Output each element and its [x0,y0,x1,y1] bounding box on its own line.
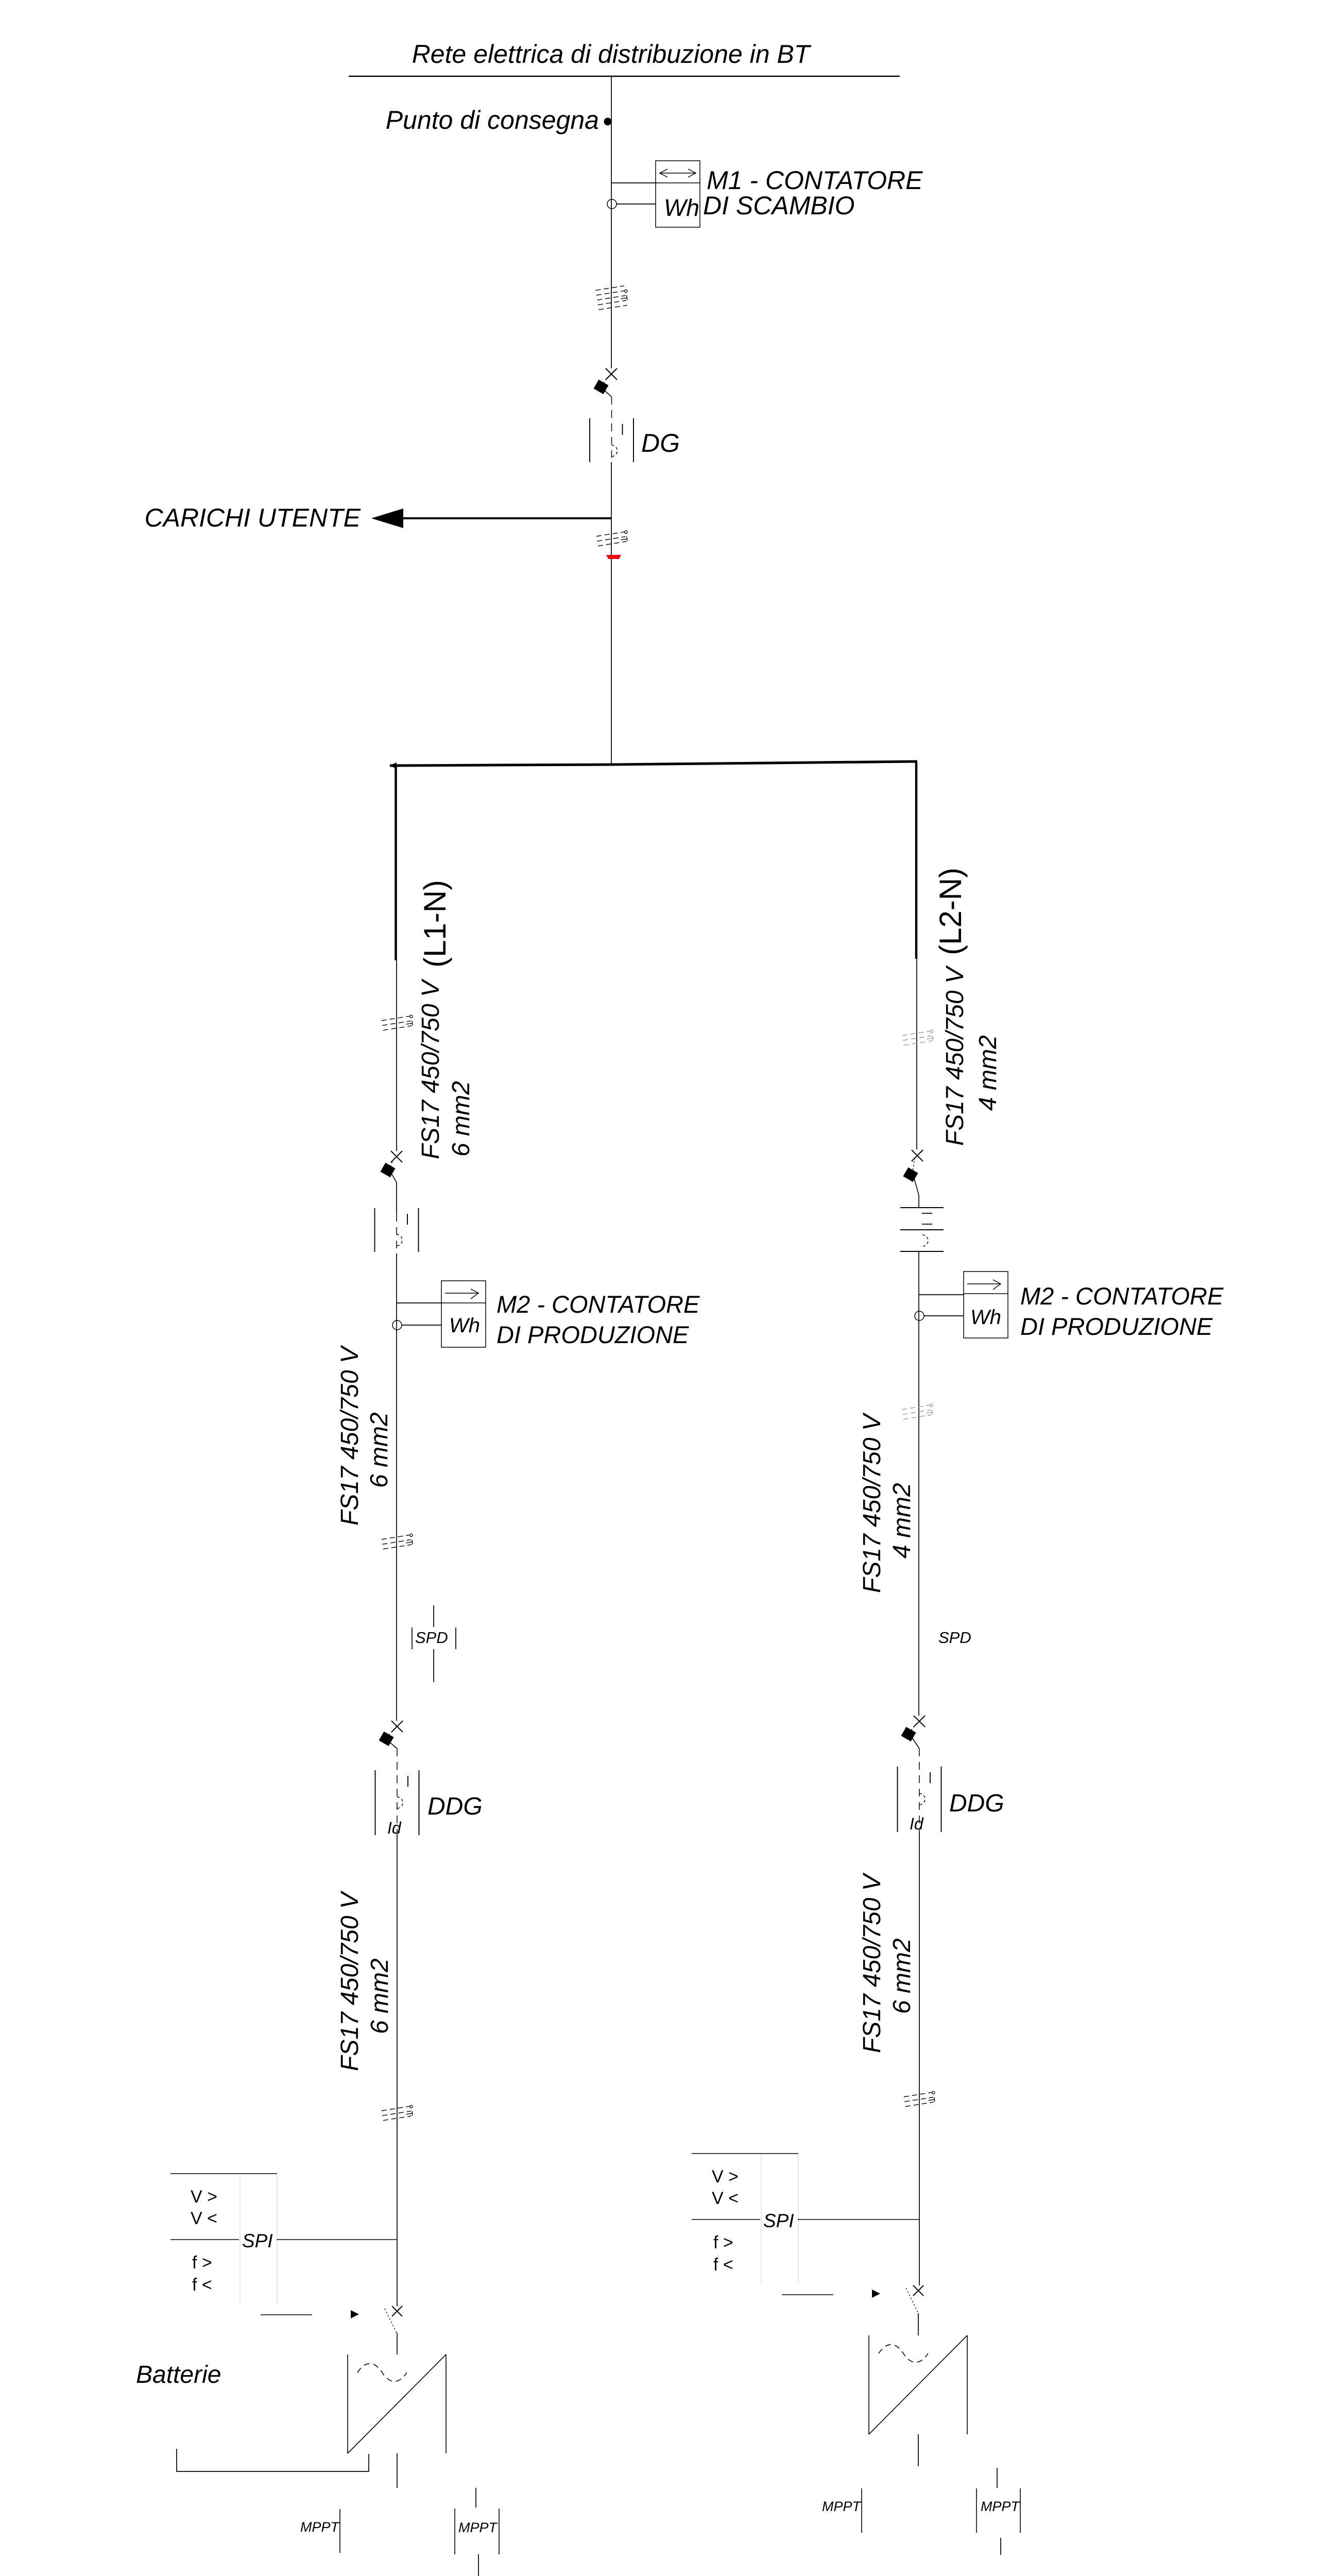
svg-text:f >: f > [192,2253,212,2273]
svg-text:(L2-N): (L2-N) [933,868,968,955]
svg-text:DDG: DDG [427,1793,483,1820]
svg-text:FS17 450/750 V: FS17 450/750 V [417,978,444,1159]
svg-text:Wh: Wh [449,1314,480,1337]
svg-text:SPI: SPI [763,2210,794,2231]
svg-text:FS17 450/750 V: FS17 450/750 V [859,1872,886,2053]
svg-text:SPI: SPI [242,2230,273,2251]
svg-text:Punto di consegna: Punto di consegna [386,106,599,134]
svg-text:(L1-N): (L1-N) [418,880,452,968]
svg-text:DI PRODUZIONE: DI PRODUZIONE [1020,1313,1213,1340]
svg-text:6 mm2: 6 mm2 [366,1958,393,2034]
svg-text:DG: DG [641,429,680,457]
svg-text:V >: V > [712,2167,739,2187]
svg-text:f <: f < [713,2255,733,2275]
svg-text:FS17 450/750 V: FS17 450/750 V [941,965,969,1146]
svg-text:4 mm2: 4 mm2 [888,1483,916,1558]
svg-text:6 mm2: 6 mm2 [888,1938,916,2014]
svg-text:DDG: DDG [949,1790,1004,1817]
svg-text:Id: Id [387,1819,402,1837]
svg-text:M2 - CONTATORE: M2 - CONTATORE [496,1291,700,1318]
svg-text:DI SCAMBIO: DI SCAMBIO [703,191,854,220]
svg-text:FS17 450/750 V: FS17 450/750 V [336,1345,364,1526]
svg-text:Rete elettrica di distribuzion: Rete elettrica di distribuzione in BT [412,40,812,69]
svg-text:MPPT: MPPT [300,2519,340,2535]
svg-text:V >: V > [191,2187,217,2207]
svg-text:MPPT: MPPT [981,2499,1021,2514]
svg-text:Id: Id [910,1815,924,1833]
svg-text:V <: V < [191,2209,217,2228]
svg-text:FS17 450/750 V: FS17 450/750 V [859,1412,886,1593]
svg-text:f <: f < [192,2275,212,2295]
svg-text:DI PRODUZIONE: DI PRODUZIONE [496,1321,689,1348]
svg-text:MPPT: MPPT [458,2520,499,2535]
svg-text:4 mm2: 4 mm2 [974,1035,1002,1111]
svg-text:Wh: Wh [970,1306,1001,1329]
svg-text:M2 - CONTATORE: M2 - CONTATORE [1020,1282,1224,1310]
svg-text:Batterie: Batterie [136,2361,221,2388]
svg-text:Wh: Wh [664,194,699,221]
svg-text:6 mm2: 6 mm2 [366,1412,393,1488]
svg-text:SPD: SPD [938,1629,971,1647]
svg-text:MPPT: MPPT [822,2499,862,2514]
svg-text:FS17 450/750 V: FS17 450/750 V [336,1890,364,2071]
svg-text:V <: V < [712,2189,739,2208]
svg-text:f >: f > [713,2233,733,2252]
svg-text:CARICHI UTENTE: CARICHI UTENTE [145,503,361,532]
svg-text:M1 - CONTATORE: M1 - CONTATORE [707,166,923,195]
svg-text:SPD: SPD [415,1629,448,1647]
svg-text:6 mm2: 6 mm2 [448,1081,475,1157]
